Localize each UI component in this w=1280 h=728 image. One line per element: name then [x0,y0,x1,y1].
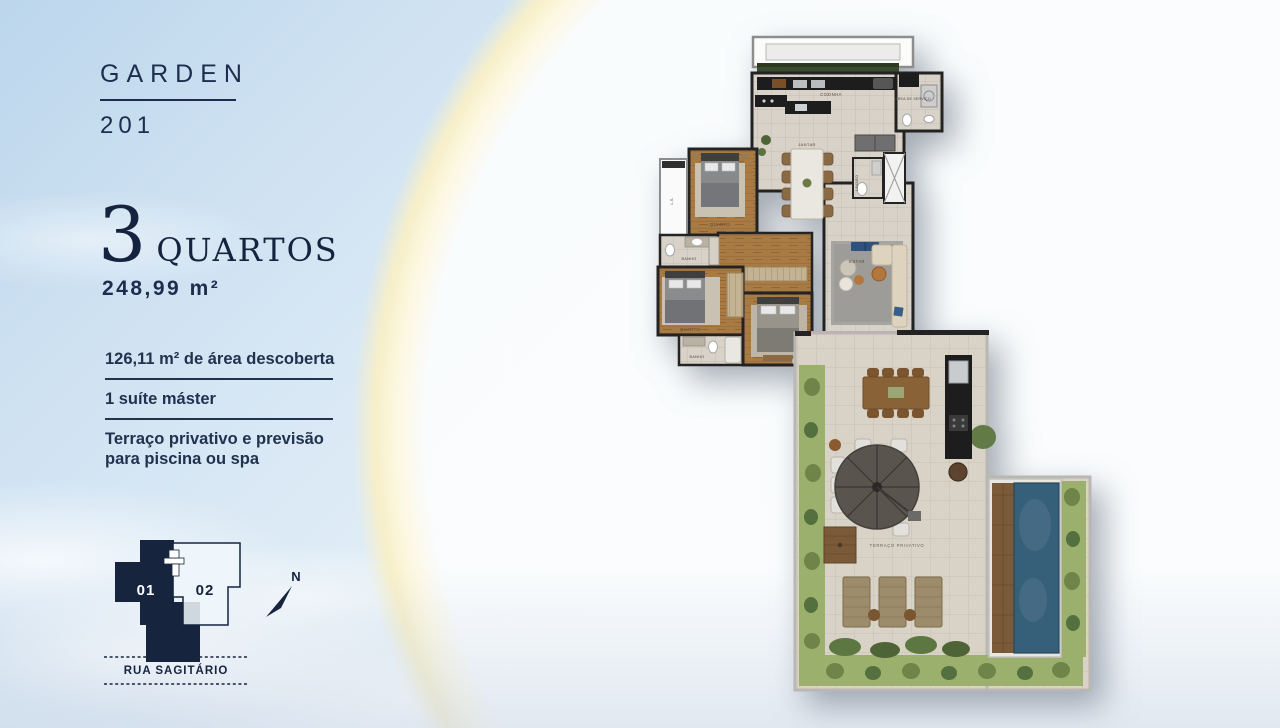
page-title: GARDEN [100,60,249,89]
feature-item: Terraço privativo e previsão para piscin… [105,429,343,469]
terrace-side-table [824,527,856,563]
room-label-cozinha: COZINHA [820,92,842,97]
bedrooms-label: QUARTOS [156,231,338,269]
page-background: { "panel": { "title": "GARDEN", "unit_nu… [0,0,1280,728]
unit-02-label: 02 [196,582,215,599]
room-label-area-servico: ÁREA DE SERVIÇO [895,97,931,101]
balcony-top [753,37,913,76]
bedrooms-headline: 3 QUARTOS [98,203,339,269]
room-label-quarto-1: QUARTO [710,222,731,227]
terrace: TERRAÇO PRIVATIVO [795,330,1090,690]
floor-plan: COZINHA ÁREA DE SERVIÇO JANTAR [645,25,1105,705]
key-plan: 01 02 N RUA SAGITÁRIO [100,533,330,703]
room-label-lavabo: LAVABO [855,175,859,191]
street-name: RUA SAGITÁRIO [124,664,229,677]
room-label-quarto-2: QUARTO [680,327,701,332]
living-fixtures [831,241,907,327]
room-label-terraco: TERRAÇO PRIVATIVO [870,543,925,548]
side-ledge [660,159,687,235]
feature-divider [105,418,333,420]
feature-item: 1 suíte máster [105,389,343,409]
room-label-suite: SUÍTE [771,298,785,303]
quarto2-fixtures [662,271,743,325]
sun-loungers [843,577,942,627]
room-label-ls: L.S. [669,197,674,204]
room-label-banho-1: BANHO [681,257,696,261]
total-area: 248,99 m² [102,277,220,301]
unit-01-label: 01 [137,582,156,599]
feature-divider [105,378,333,380]
title-divider [100,99,236,101]
stair-shaft [884,153,905,203]
feature-list: 126,11 m² de área descoberta 1 suíte más… [105,349,343,470]
ledge-board [662,161,685,168]
bedrooms-count: 3 [98,203,146,268]
room-label-banho-2: BANHO [689,355,704,359]
north-arrow-icon [266,586,292,617]
room-label-jantar: JANTAR [798,142,816,147]
pool [989,479,1061,657]
room-label-estar: ESTAR [849,259,865,264]
unit-number: 201 [100,112,155,140]
north-label: N [291,569,300,584]
feature-item: 126,11 m² de área descoberta [105,349,343,369]
